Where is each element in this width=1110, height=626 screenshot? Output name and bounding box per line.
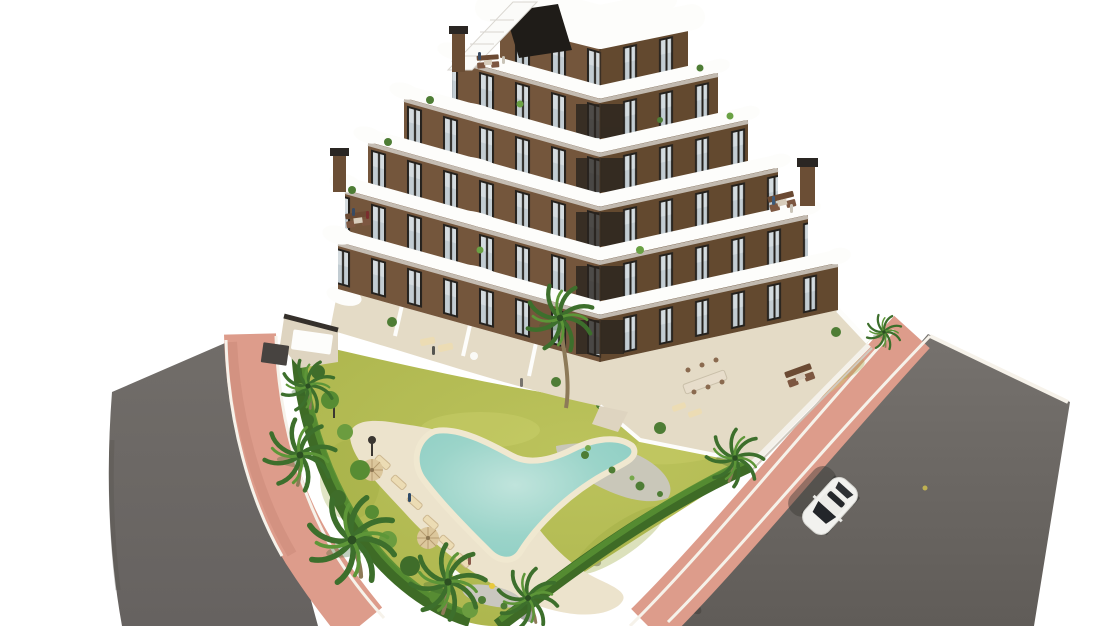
aerial-render <box>0 0 1110 626</box>
road-speck <box>923 486 928 491</box>
chimney <box>797 158 818 206</box>
parasol <box>417 527 439 549</box>
pool-float <box>489 583 495 589</box>
aerial-render-canvas <box>0 0 1110 626</box>
entrance-gate <box>261 342 290 365</box>
